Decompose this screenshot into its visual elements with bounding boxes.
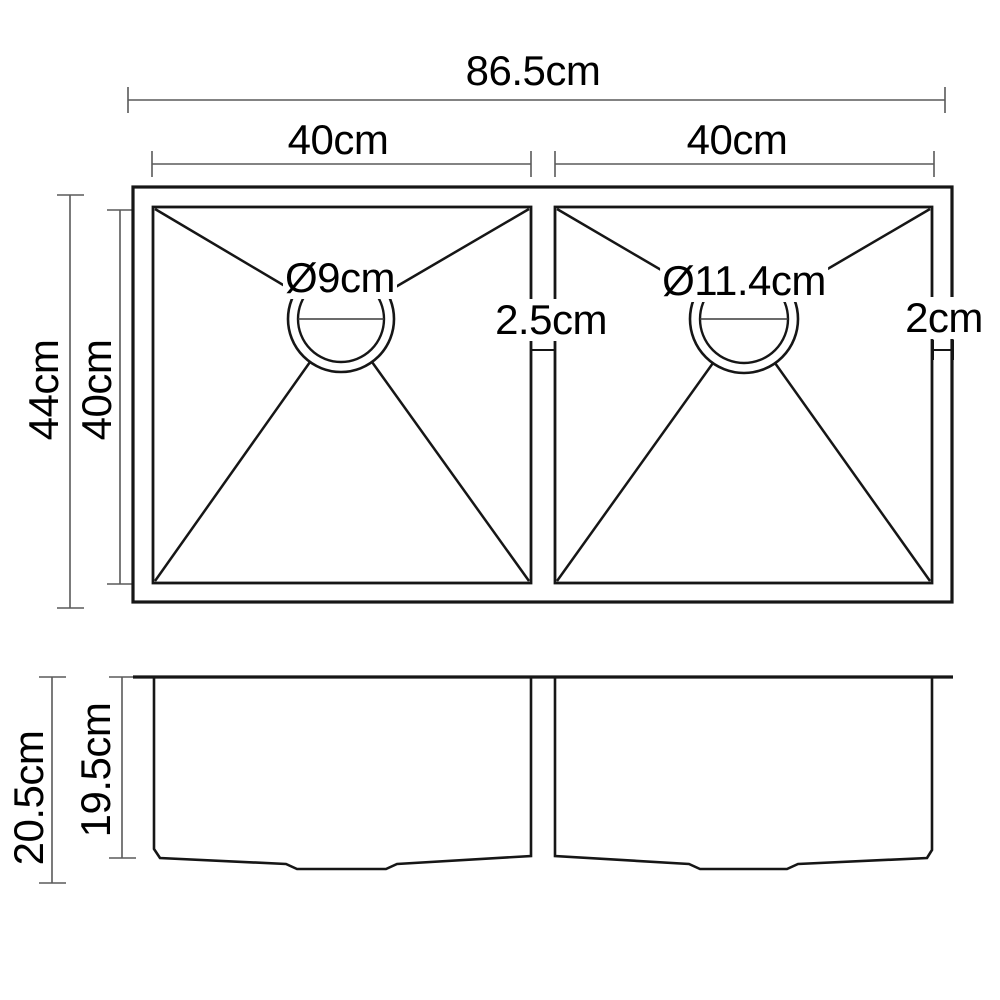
divider-width-label: 2.5cm [493, 299, 609, 341]
side-view [133, 677, 953, 869]
overall-height-label: 20.5cm [8, 731, 50, 866]
bowl-height-label: 19.5cm [75, 703, 117, 838]
sink-dimension-diagram: 86.5cm 40cm 40cm 44cm 40cm Ø9cm Ø11.4cm … [0, 0, 1000, 1000]
sink-outer-rect [133, 187, 952, 602]
divider-width-marker [531, 340, 555, 361]
left-bowl-width-label: 40cm [288, 119, 389, 161]
bowl-depth-label: 40cm [76, 340, 118, 441]
right-bowl-profile [555, 677, 932, 869]
top-view [133, 187, 953, 602]
left-bowl-profile [154, 677, 531, 869]
edge-width-label: 2cm [903, 297, 985, 339]
overall-width-label: 86.5cm [466, 50, 601, 92]
left-drain-label: Ø9cm [283, 257, 397, 299]
right-drain-label: Ø11.4cm [660, 260, 828, 302]
right-bowl-width-label: 40cm [687, 119, 788, 161]
edge-width-marker [933, 340, 953, 360]
overall-depth-label: 44cm [23, 340, 65, 441]
diagram-linework [0, 0, 1000, 1000]
